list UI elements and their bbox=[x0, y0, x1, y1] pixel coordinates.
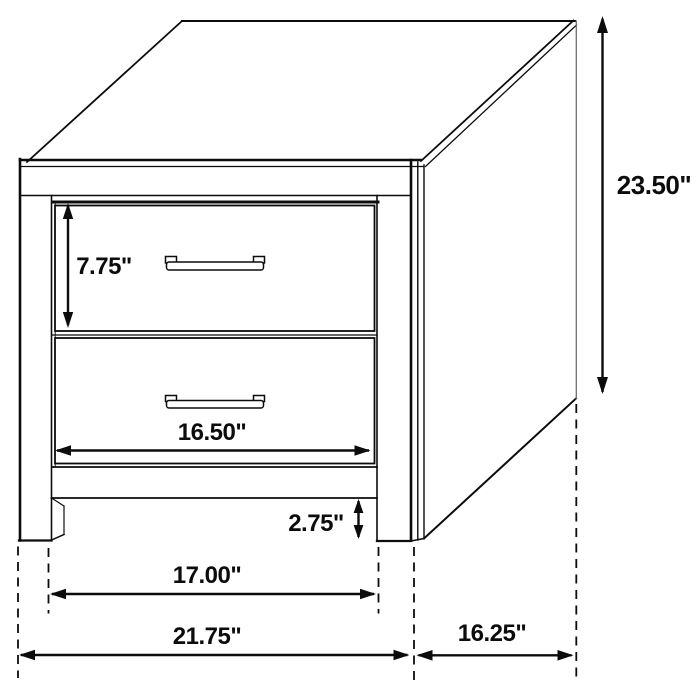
dimension-arrow-floor-clearance bbox=[354, 499, 364, 539]
dimension-arrow-overall-width bbox=[19, 650, 410, 661]
dim-label-inner-leg-span: 17.00" bbox=[173, 564, 241, 588]
dim-label-overall-depth: 16.25" bbox=[458, 622, 526, 646]
nightstand-line-drawing bbox=[0, 0, 700, 700]
dim-label-drawer-width: 16.50" bbox=[178, 421, 246, 445]
dimension-arrow-inner-leg-span bbox=[50, 589, 376, 600]
dimension-arrow-overall-height bbox=[597, 16, 608, 394]
dim-label-overall-width: 21.75" bbox=[173, 625, 241, 649]
dim-label-floor-clearance: 2.75" bbox=[288, 512, 344, 536]
dim-label-overall-height: 23.50" bbox=[617, 172, 691, 198]
dim-label-top-drawer-height: 7.75" bbox=[76, 255, 132, 279]
dimension-diagram: 23.50" 7.75" 16.50" 2.75" 17.00" 21.75" … bbox=[0, 0, 700, 700]
dimension-arrow-overall-depth bbox=[417, 650, 574, 661]
